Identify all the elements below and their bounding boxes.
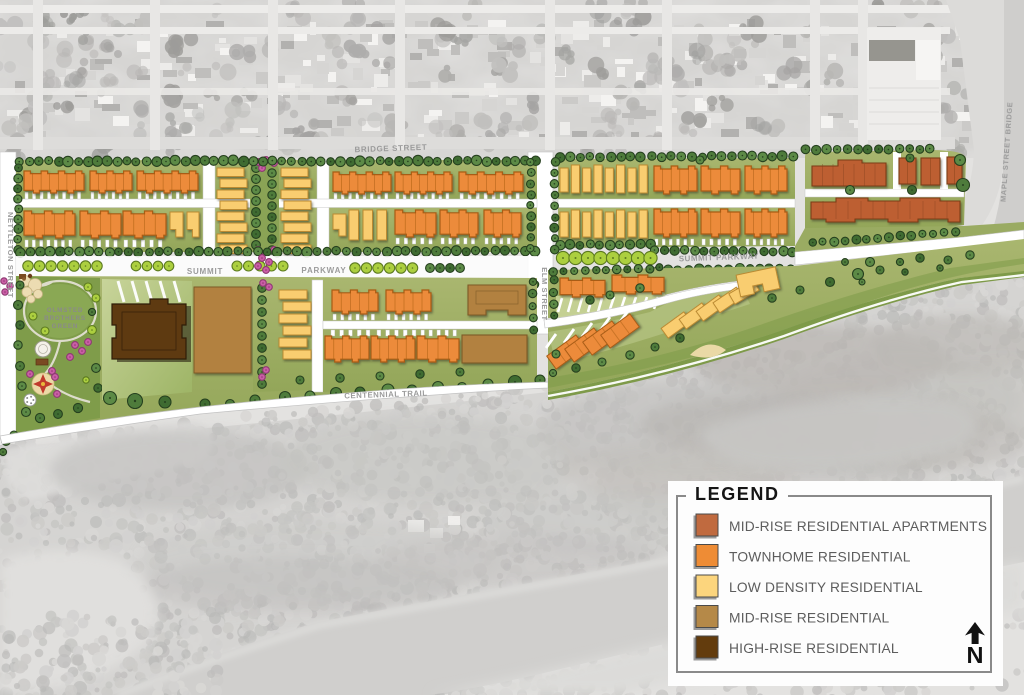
svg-text:BROTHERS: BROTHERS (44, 315, 86, 322)
svg-text:SUMMIT: SUMMIT (187, 267, 223, 276)
svg-text:OLMSTED: OLMSTED (47, 307, 83, 314)
svg-text:GREEN: GREEN (52, 323, 78, 330)
svg-text:PARKWAY: PARKWAY (301, 266, 346, 275)
